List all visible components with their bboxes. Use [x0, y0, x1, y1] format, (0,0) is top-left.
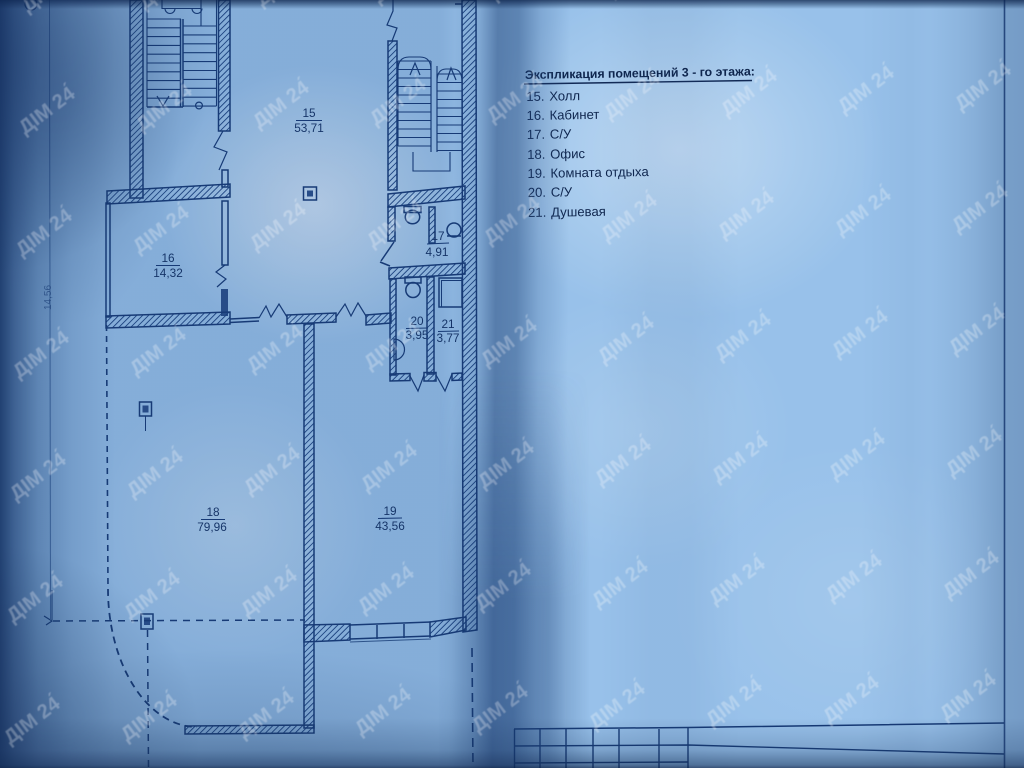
svg-text:ДІМ 24́: ДІМ 24́ [704, 551, 771, 609]
svg-text:16: 16 [161, 251, 175, 265]
svg-text:ДІМ 24́: ДІМ 24́ [353, 560, 420, 618]
svg-text:ДІМ 24́: ДІМ 24́ [593, 310, 660, 368]
svg-text:ДІМ 24́: ДІМ 24́ [938, 545, 1005, 603]
svg-text:ДІМ 24́: ДІМ 24́ [587, 554, 654, 612]
svg-text:20: 20 [410, 314, 424, 328]
svg-text:79,96: 79,96 [197, 520, 227, 534]
svg-text:43,56: 43,56 [375, 519, 405, 533]
svg-text:ДІМ 24́: ДІМ 24́ [599, 66, 666, 124]
svg-text:ДІМ 24́: ДІМ 24́ [359, 316, 426, 374]
svg-text:ДІМ 24́: ДІМ 24́ [116, 688, 183, 746]
svg-text:ДІМ 24́: ДІМ 24́ [251, 0, 318, 11]
svg-text:ДІМ 24́: ДІМ 24́ [5, 447, 72, 505]
svg-text:ДІМ 24́: ДІМ 24́ [596, 188, 663, 246]
svg-text:ДІМ 24́: ДІМ 24́ [368, 0, 435, 8]
svg-text:ДІМ 24́: ДІМ 24́ [8, 325, 75, 383]
svg-text:Комната отдыха: Комната отдыха [550, 164, 649, 181]
svg-text:ДІМ 24́: ДІМ 24́ [590, 432, 657, 490]
svg-text:ДІМ 24́: ДІМ 24́ [701, 673, 768, 731]
svg-text:ДІМ 24́: ДІМ 24́ [17, 0, 84, 17]
svg-text:ДІМ 24́: ДІМ 24́ [245, 197, 312, 255]
svg-text:ДІМ 24́: ДІМ 24́ [824, 426, 891, 484]
svg-text:3,95: 3,95 [406, 328, 429, 342]
svg-text:ДІМ 24́: ДІМ 24́ [827, 304, 894, 362]
svg-text:ДІМ 24́: ДІМ 24́ [602, 0, 669, 2]
svg-text:ДІМ 24́: ДІМ 24́ [365, 72, 432, 130]
svg-text:ДІМ 24́: ДІМ 24́ [248, 75, 315, 133]
svg-text:ДІМ 24́: ДІМ 24́ [833, 60, 900, 118]
svg-text:ДІМ 24́: ДІМ 24́ [584, 676, 651, 734]
svg-text:ДІМ 24́: ДІМ 24́ [476, 313, 543, 371]
svg-text:ДІМ 24́: ДІМ 24́ [482, 69, 549, 127]
svg-text:ДІМ 24́: ДІМ 24́ [242, 319, 309, 377]
svg-text:20.: 20. [528, 185, 546, 200]
svg-text:С/У: С/У [551, 184, 573, 199]
svg-text:ДІМ 24́: ДІМ 24́ [125, 322, 192, 380]
svg-text:16.: 16. [526, 108, 544, 123]
svg-text:ДІМ 24́: ДІМ 24́ [479, 191, 546, 249]
svg-text:ДІМ 24́: ДІМ 24́ [128, 200, 195, 258]
svg-text:ДІМ 24́: ДІМ 24́ [236, 563, 303, 621]
svg-text:ДІМ 24́: ДІМ 24́ [485, 0, 552, 5]
svg-text:Душевая: Душевая [551, 204, 606, 220]
svg-text:ДІМ 24́: ДІМ 24́ [713, 185, 780, 243]
svg-text:ДІМ 24́: ДІМ 24́ [134, 0, 201, 14]
svg-text:3,77: 3,77 [437, 331, 460, 345]
svg-text:15: 15 [302, 106, 316, 120]
svg-text:ДІМ 24́: ДІМ 24́ [350, 682, 417, 740]
svg-text:ДІМ 24́: ДІМ 24́ [710, 307, 777, 365]
svg-text:С/У: С/У [550, 126, 572, 141]
svg-text:Кабинет: Кабинет [549, 107, 599, 123]
svg-text:ДІМ 24́: ДІМ 24́ [941, 423, 1008, 481]
svg-text:ДІМ 24́: ДІМ 24́ [467, 679, 534, 737]
svg-text:ДІМ 24́: ДІМ 24́ [356, 438, 423, 496]
svg-text:ДІМ 24́: ДІМ 24́ [14, 81, 81, 139]
svg-text:ДІМ 24́: ДІМ 24́ [119, 566, 186, 624]
svg-text:ДІМ 24́: ДІМ 24́ [716, 63, 783, 121]
svg-text:ДІМ 24́: ДІМ 24́ [2, 569, 69, 627]
svg-text:ДІМ 24́: ДІМ 24́ [950, 57, 1017, 115]
svg-text:4,91: 4,91 [426, 245, 449, 259]
svg-text:19: 19 [383, 504, 396, 518]
svg-text:Экспликация помещений 3 - го э: Экспликация помещений 3 - го этажа: [525, 64, 755, 82]
svg-text:ДІМ 24́: ДІМ 24́ [830, 182, 897, 240]
svg-text:14,56: 14,56 [43, 285, 54, 310]
svg-text:ДІМ 24́: ДІМ 24́ [707, 429, 774, 487]
svg-text:ДІМ 24́: ДІМ 24́ [131, 78, 198, 136]
svg-text:Холл: Холл [549, 88, 580, 103]
svg-text:ДІМ 24́: ДІМ 24́ [0, 691, 65, 749]
svg-text:ДІМ 24́: ДІМ 24́ [818, 670, 885, 728]
svg-text:ДІМ 24́: ДІМ 24́ [473, 435, 540, 493]
svg-text:ДІМ 24́: ДІМ 24́ [11, 203, 78, 261]
svg-text:18.: 18. [527, 147, 545, 162]
svg-text:ДІМ 24́: ДІМ 24́ [233, 685, 300, 743]
svg-text:ДІМ 24́: ДІМ 24́ [362, 194, 429, 252]
svg-text:18: 18 [206, 505, 220, 519]
svg-text:15.: 15. [526, 89, 544, 104]
svg-text:ДІМ 24́: ДІМ 24́ [821, 548, 888, 606]
svg-text:21: 21 [441, 317, 454, 331]
svg-text:ДІМ 24́: ДІМ 24́ [947, 179, 1014, 237]
svg-text:ДІМ 24́: ДІМ 24́ [470, 557, 537, 615]
svg-text:19.: 19. [527, 166, 545, 181]
svg-text:53,71: 53,71 [294, 121, 324, 135]
svg-text:ДІМ 24́: ДІМ 24́ [239, 441, 306, 499]
svg-text:17.: 17. [527, 127, 545, 142]
svg-text:17: 17 [431, 229, 444, 243]
svg-text:ДІМ 24́: ДІМ 24́ [122, 444, 189, 502]
svg-text:ДІМ 24́: ДІМ 24́ [935, 667, 1002, 725]
svg-text:ДІМ 24́: ДІМ 24́ [944, 301, 1011, 359]
svg-text:Офис: Офис [550, 146, 586, 162]
svg-text:14,32: 14,32 [153, 266, 183, 280]
svg-text:21.: 21. [528, 205, 546, 220]
